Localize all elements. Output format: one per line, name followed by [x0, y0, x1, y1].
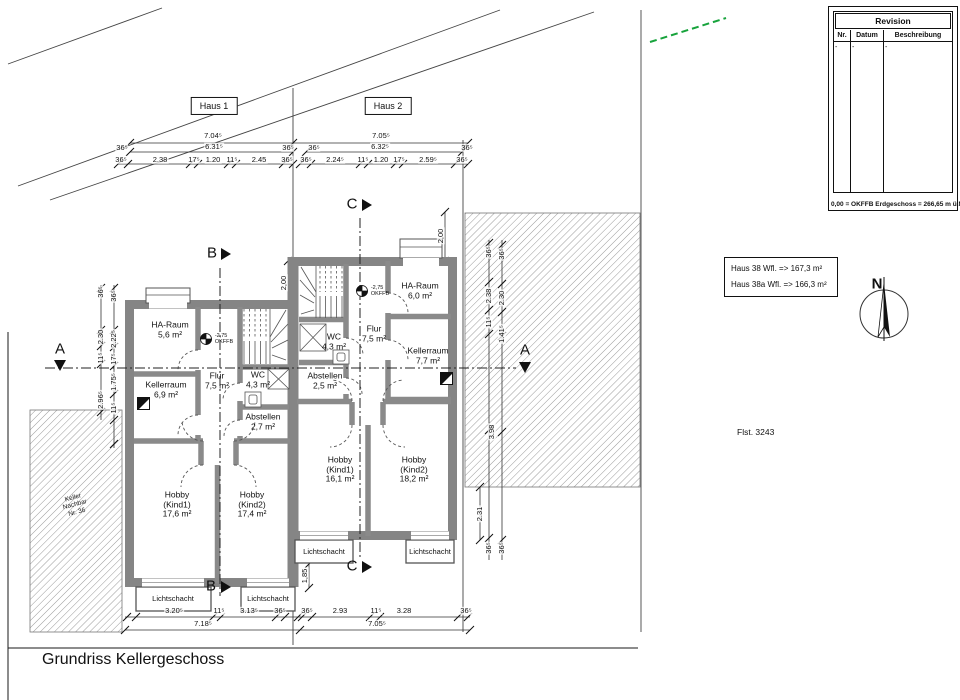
revision-table: Revision Nr. Datum Beschreibung - - -	[833, 11, 953, 193]
datum-note: 0,00 = OKFFB Erdgeschoss = 266,65 m ü.NN	[831, 201, 955, 208]
revision-col-beschreibung: Beschreibung	[884, 30, 952, 41]
living-area-box: Haus 38 Wfl. => 167,3 m² Haus 38a Wfl. =…	[724, 257, 838, 297]
revision-block: Revision Nr. Datum Beschreibung - - - 0,…	[828, 6, 958, 211]
revision-col-datum: Datum	[851, 30, 884, 41]
revision-cell: -	[851, 42, 884, 192]
revision-table-title: Revision	[835, 13, 951, 29]
north-arrow	[860, 277, 908, 341]
living-area-haus38: Haus 38 Wfl. => 167,3 m²	[731, 261, 831, 277]
revision-table-header: Nr. Datum Beschreibung	[834, 30, 952, 42]
revision-table-row: - - -	[834, 42, 952, 192]
revision-cell: -	[884, 42, 952, 192]
stairs-haus2	[300, 266, 342, 318]
hatch-area-left	[30, 410, 122, 632]
living-area-haus38a: Haus 38a Wfl. => 166,3 m²	[731, 277, 831, 293]
revision-cell: -	[834, 42, 851, 192]
level-symbols	[201, 286, 368, 345]
north-letter: N	[872, 276, 883, 293]
parcel-label: Flst. 3243	[737, 427, 774, 437]
drawing-title: Grundriss Kellergeschoss	[42, 651, 224, 669]
hatch-area-right	[465, 213, 640, 487]
green-boundary-line	[650, 18, 726, 42]
floor-plan-svg	[0, 0, 960, 700]
drawing-sheet: HA-Raum5,6 m²Kellerraum6,9 m²Flur7,5 m²W…	[0, 0, 960, 700]
revision-col-nr: Nr.	[834, 30, 851, 41]
stairs-haus1	[244, 309, 288, 364]
